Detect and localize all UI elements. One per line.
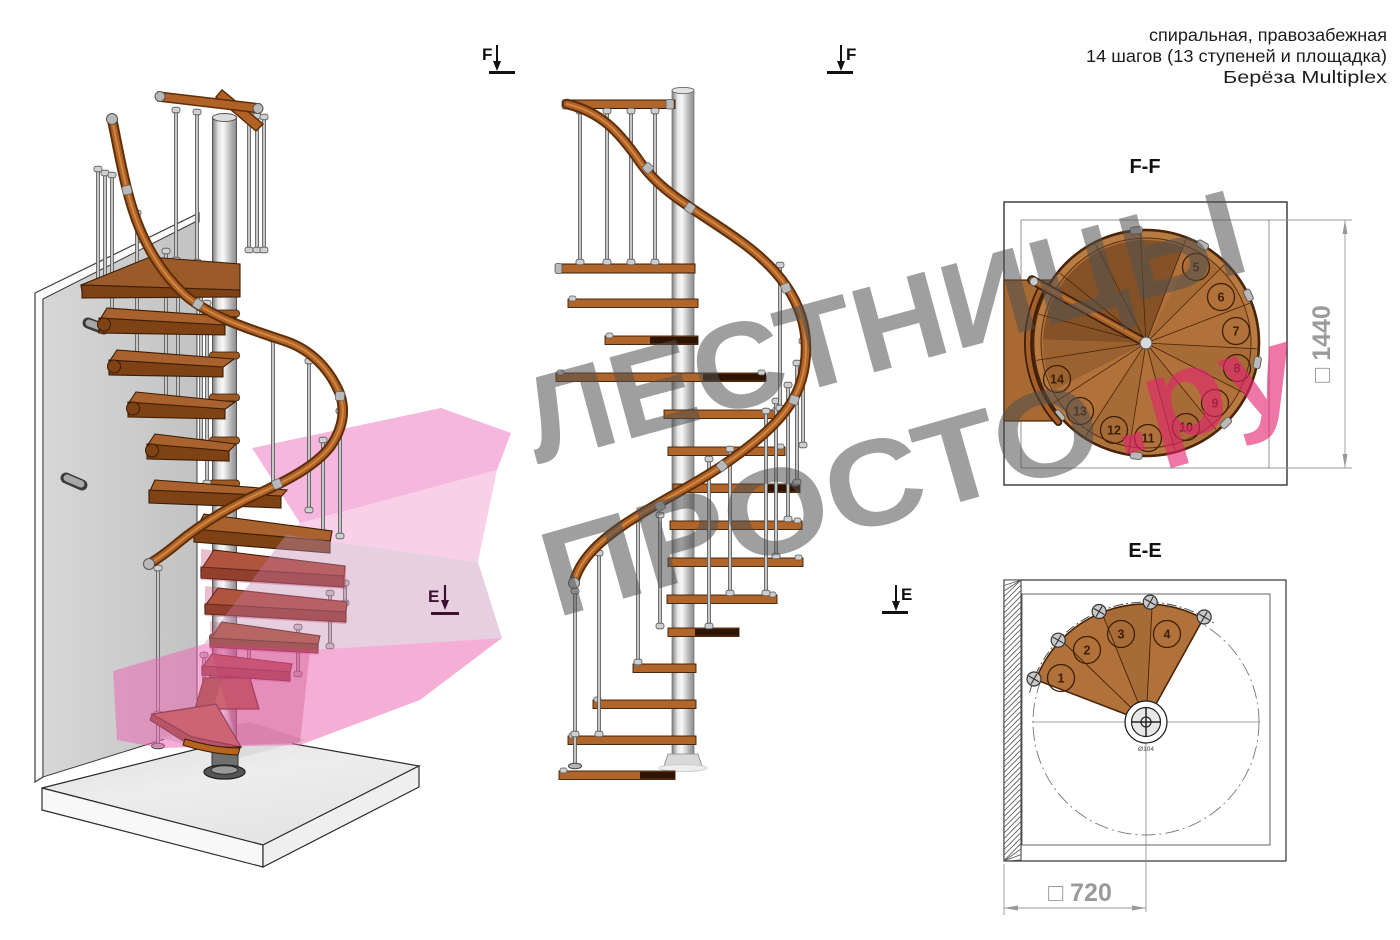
svg-text:2: 2 [1084,644,1091,658]
svg-text:Берёза Multiplex: Берёза Multiplex [1223,67,1387,87]
svg-text:4: 4 [1164,628,1171,642]
svg-text:14 шагов (13 ступеней и площад: 14 шагов (13 ступеней и площадка) [1086,46,1387,66]
svg-text:спиральная, правозабежная: спиральная, правозабежная [1149,25,1387,45]
svg-text:E: E [901,585,912,604]
svg-text:F: F [846,45,856,64]
svg-text:□ 720: □ 720 [1048,879,1112,907]
svg-text:□ 1440: □ 1440 [1308,305,1336,383]
svg-text:Ø104: Ø104 [1138,746,1154,753]
svg-text:3: 3 [1118,628,1125,642]
svg-text:1: 1 [1058,672,1065,686]
svg-text:E-E: E-E [1128,540,1161,562]
svg-text:E: E [428,587,439,606]
svg-text:F: F [482,45,492,64]
svg-text:F-F: F-F [1129,156,1160,178]
